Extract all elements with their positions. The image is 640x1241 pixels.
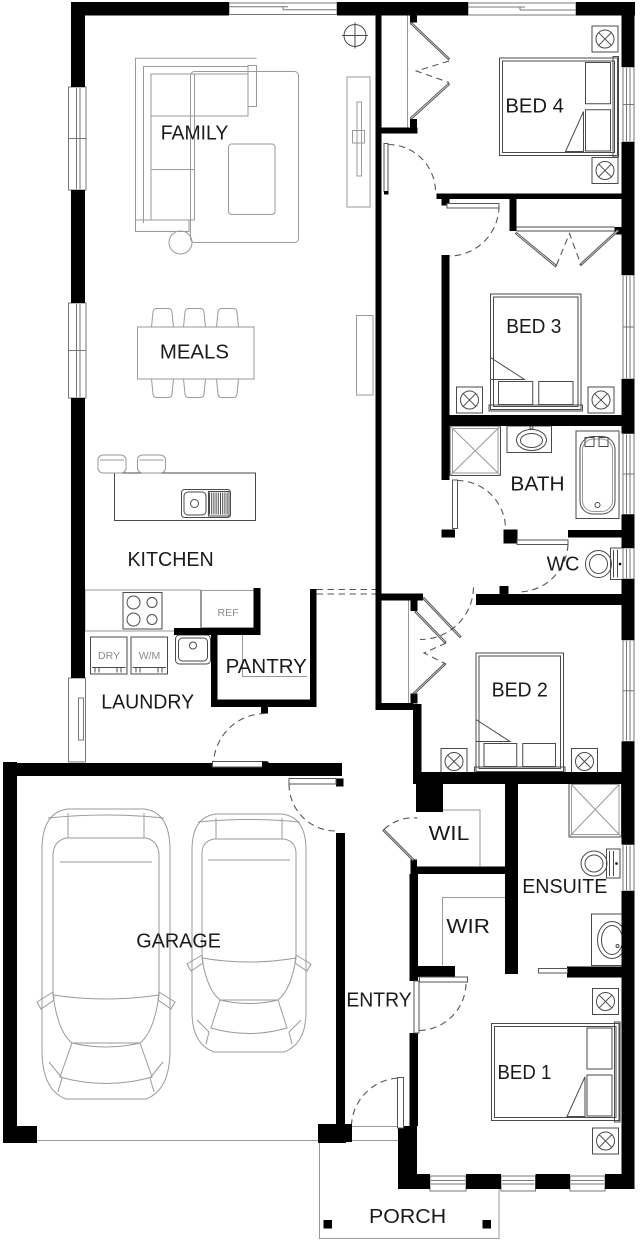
svg-text:WIL: WIL	[429, 823, 470, 845]
svg-text:BED 1: BED 1	[498, 1062, 552, 1084]
svg-text:DRY: DRY	[98, 650, 120, 662]
svg-text:BED 4: BED 4	[505, 95, 564, 117]
svg-text:PORCH: PORCH	[369, 1206, 446, 1228]
svg-text:BATH: BATH	[510, 473, 564, 495]
svg-text:REF: REF	[218, 607, 239, 619]
svg-text:ENTRY: ENTRY	[346, 989, 412, 1011]
svg-text:FAMILY: FAMILY	[161, 123, 229, 145]
svg-text:WC: WC	[547, 553, 580, 575]
svg-text:BED 3: BED 3	[506, 316, 561, 338]
svg-text:GARAGE: GARAGE	[136, 930, 221, 952]
svg-text:PANTRY: PANTRY	[226, 656, 308, 678]
svg-text:W/M: W/M	[139, 650, 161, 662]
svg-text:LAUNDRY: LAUNDRY	[101, 692, 194, 714]
svg-text:KITCHEN: KITCHEN	[127, 549, 213, 571]
svg-text:WIR: WIR	[446, 916, 490, 938]
svg-text:BED 2: BED 2	[492, 679, 548, 701]
svg-text:ENSUITE: ENSUITE	[522, 876, 607, 898]
svg-text:MEALS: MEALS	[160, 341, 229, 363]
